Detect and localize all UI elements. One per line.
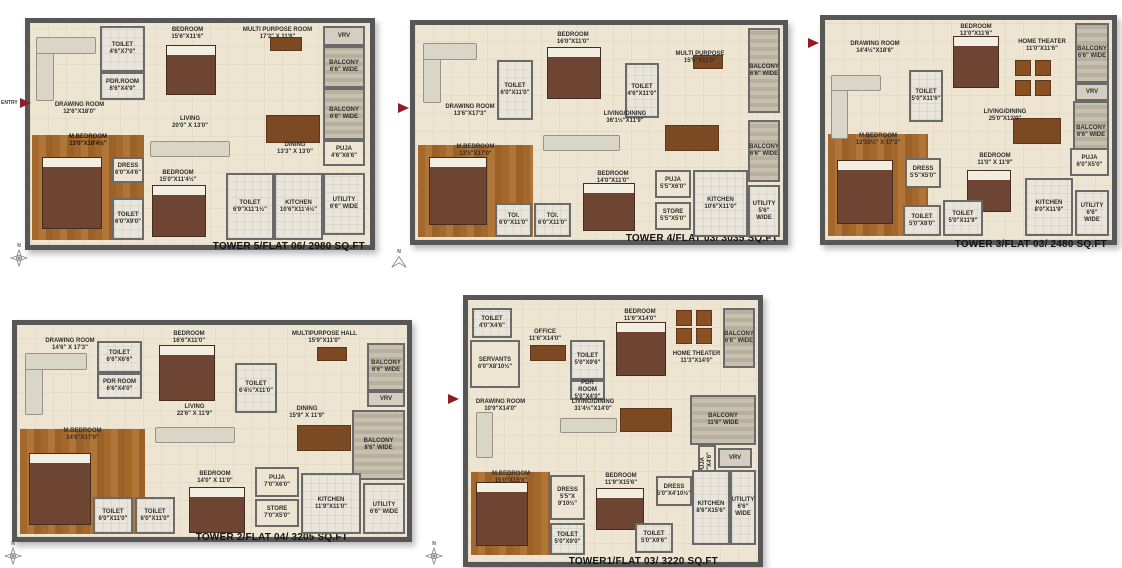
dining-table-graphic: [266, 115, 320, 143]
dining-table-graphic: [297, 425, 351, 451]
room-balcony: BALCONY 11'6" WIDE: [690, 395, 756, 445]
room-drawing: DRAWING ROOM 10'9"X14'0": [473, 398, 528, 418]
sofa-graphic: [560, 418, 617, 433]
room-bedroom: BEDROOM 14'0" X 11'0": [177, 470, 253, 488]
room-balcony: BALCONY 6'6" WIDE: [323, 88, 365, 140]
room-toilet: TOILET 6'0"X9'0": [112, 198, 144, 240]
room-bedroom: BEDROOM 12'0"X11'6": [943, 23, 1009, 41]
room-toi: TOI. 6'0"X11'0": [534, 203, 571, 237]
room-bedroom: BEDROOM 11'0" X 11'9": [957, 152, 1033, 170]
room-bedroom: BEDROOM 16'0"X11'0": [533, 31, 613, 49]
room-toilet: TOILET 4'0"X4'6": [472, 308, 512, 338]
entry-arrow-icon: [448, 394, 459, 404]
room-balcony: BALCONY 6'6" WIDE: [1075, 23, 1109, 83]
theater-seat-graphic: [1035, 80, 1051, 96]
room-toilet: TOILET 5'0"X9'0": [550, 523, 585, 555]
room-pdr: PDR.ROOM 6'6"X4'9": [100, 72, 145, 100]
room-pdr: PDR ROOM 5'0"X4'0": [570, 380, 605, 400]
room-balcony: BALCONY 8'6" WIDE: [352, 410, 405, 480]
room-master-bedroom: M.BEDROOM 14'6"X17'0": [20, 427, 145, 447]
compass-icon: N: [9, 244, 29, 272]
room-dress: DRESS 5'0"X4'10½": [656, 476, 692, 506]
theater-seat-graphic: [676, 328, 692, 344]
room-toilet: TOILET 5'0"X11'9": [943, 200, 983, 236]
room-vrv: VRV: [367, 391, 405, 407]
room-balcony: BALCONY 6'6" WIDE: [323, 46, 365, 88]
bed-graphic: [583, 183, 635, 231]
room-bedroom: BEDROOM 15'6"X11'6": [145, 26, 230, 56]
room-pdr: PDR ROOM 6'6"X4'0": [97, 373, 142, 399]
bed-graphic: [159, 345, 215, 401]
sofa-graphic: [36, 37, 96, 54]
bed-graphic: [476, 482, 528, 546]
bed-graphic: [429, 157, 487, 225]
room-servants: SERVANTS 6'0"X8'10½": [470, 340, 520, 388]
plan-title-tower-3: TOWER 3/FLAT 03/ 2480 SQ.FT: [902, 239, 1107, 250]
floor-plans-sheet: TOILET 4'6"X7'0" PDR.ROOM 6'6"X4'9" BEDR…: [0, 0, 1122, 568]
room-kitchen: KITCHEN 11'9"X11'0": [301, 473, 361, 534]
room-store: STORE 7'0"X5'0": [255, 499, 299, 527]
room-toilet: TOILET 6'6"X6'6": [97, 341, 142, 373]
room-bedroom: BEDROOM 14'0"X11'0": [571, 170, 655, 188]
room-toilet: TOILET 6'0"X11'0": [93, 497, 133, 534]
room-puja: PUJA 5'5"X6'0": [655, 170, 691, 198]
room-master-bedroom: M.BEDROOM 15'0"X15'6": [471, 470, 551, 488]
room-balcony: BALCONY 6'6" WIDE: [748, 120, 780, 182]
room-utility: UTILITY 5'6" WIDE: [748, 185, 780, 237]
floor-plan-tower-4: DRAWING ROOM 13'6"X17'3" TOILET 6'0"X11'…: [410, 20, 788, 245]
room-kitchen: KITCHEN 8'0"X11'9": [1025, 178, 1073, 236]
theater-seat-graphic: [676, 310, 692, 326]
room-master-bedroom: M BEDROOM 12'10½" X 17'3": [828, 132, 928, 152]
room-vrv: VRV: [718, 448, 752, 468]
entry-label: ENTRY: [1, 100, 18, 106]
room-drawing: DRAWING ROOM 14'4½"X18'6": [835, 40, 915, 66]
room-balcony: BALCONY 6'6" WIDE: [748, 28, 780, 113]
room-bedroom: BEDROOM 11'6"X14'0": [605, 308, 675, 326]
entry-arrow-icon: [20, 98, 31, 108]
room-living-dining: LIVING/DINING 25'0"X12'0": [960, 108, 1050, 126]
theater-seat-graphic: [1015, 80, 1031, 96]
room-store: STORE 5'5"X5'0": [655, 202, 691, 230]
room-master-bedroom: M.BEDROOM 13'5"X17'0": [418, 143, 533, 163]
plan-title-tower-1: TOWER1/FLAT 03/ 3220 SQ.FT: [518, 556, 718, 567]
theater-seat-graphic: [1035, 60, 1051, 76]
room-living-dining: LIVING/DINING 36'1½"X11'9": [575, 110, 675, 130]
room-kitchen: KITCHEN 8'6"X15'6": [692, 470, 730, 545]
room-toilet: TOILET 5'0"X11'6": [909, 70, 943, 122]
room-kitchen: KITCHEN 10'6"X11'0": [693, 170, 748, 237]
desk-graphic: [530, 345, 566, 361]
room-toi: TOI. 6'0"X11'0": [495, 203, 532, 237]
sofa-graphic: [831, 75, 881, 91]
room-vrv: VRV: [1075, 83, 1109, 101]
room-home-theater: HOME THEATER 11'0"X11'6": [1009, 38, 1075, 58]
room-toilet: TOILET 6'0"X11'0": [497, 60, 533, 120]
sofa-graphic: [476, 412, 493, 458]
room-master-bedroom: M.BEDROOM 13'0"X18'4½": [32, 133, 144, 157]
room-utility: UTILITY 6'6" WIDE: [363, 483, 405, 534]
room-toilet: TOILET 4'6"X7'0": [100, 26, 145, 72]
room-toilet: TOILET 6'0"X11'0": [135, 497, 175, 534]
room-toilet: TOILET 5'0"X9'6": [570, 340, 605, 380]
bed-graphic: [837, 160, 893, 224]
bed-graphic: [152, 185, 206, 237]
sofa-graphic: [150, 141, 230, 157]
floor-plan-tower-5: TOILET 4'6"X7'0" PDR.ROOM 6'6"X4'9" BEDR…: [25, 18, 375, 250]
sofa-graphic: [543, 135, 620, 151]
compass-icon: N: [389, 250, 409, 274]
room-dress: DRESS 5'5"X 9'10½": [550, 475, 585, 520]
room-utility: UTILITY 6'6" WIDE: [1075, 190, 1109, 236]
room-balcony: BALCONY 6'6" WIDE: [367, 343, 405, 391]
compass-icon: N: [424, 542, 444, 568]
sofa-graphic: [423, 43, 477, 60]
room-vrv: VRV: [323, 26, 365, 46]
room-dining: DINING 13'3" X 13'0": [265, 141, 325, 161]
room-toilet: TOILET 5'0"X8'0": [903, 205, 941, 236]
entry-arrow-icon: [808, 38, 819, 48]
bed-graphic: [616, 322, 666, 376]
room-dining: DINING 15'9" X 11'9": [272, 405, 342, 423]
plan-title-tower-5: TOWER 5/FLAT 06/ 2980 SQ.FT: [160, 241, 365, 252]
room-living: LIVING 20'0" X 13'0": [145, 115, 235, 139]
sofa-graphic: [155, 427, 235, 443]
bed-graphic: [29, 453, 91, 525]
room-drawing: DRAWING ROOM 12'6"X18'0": [32, 101, 127, 131]
room-bedroom: BEDROOM 16'6"X11'0": [144, 330, 234, 348]
room-utility: UTILITY 6'6" WIDE: [730, 470, 756, 545]
room-dress: DRESS 5'5"X5'0": [905, 158, 941, 188]
room-office: OFFICE 11'6"X14'0": [520, 328, 570, 346]
entry-marker: ENTRY: [1, 98, 31, 108]
room-living-dining: LIVING/DINING 31'4½"X14'0": [543, 398, 643, 416]
room-multipurpose: MULTI PURPOSE 15'5"X11'0": [659, 50, 741, 80]
room-kitchen: KITCHEN 10'6"X11'4½": [274, 173, 323, 240]
room-dress: DRESS 6'0"X4'6": [112, 157, 144, 183]
room-utility: UTILITY 6'6" WIDE: [323, 173, 365, 235]
room-toilet: TOILET 5'0"X9'6": [635, 523, 673, 553]
theater-seat-graphic: [696, 328, 712, 344]
floor-plan-tower-1: TOILET 4'0"X4'6" SERVANTS 6'0"X8'10½" OF…: [463, 295, 763, 567]
room-home-theater: HOME THEATER 11'3"X14'0": [670, 350, 723, 370]
bed-graphic: [953, 36, 999, 88]
room-puja: PUJA 6'0"X5'0": [1070, 148, 1109, 176]
entry-arrow-icon: [398, 103, 409, 113]
room-balcony: BALCONY 6'6" WIDE: [723, 308, 755, 368]
bed-graphic: [42, 157, 102, 229]
floor-plan-tower-2: DRAWING ROOM 14'6" X 17'3" TOILET 6'6"X6…: [12, 320, 412, 542]
room-multipurpose-hall: MULTIPURPOSE HALL 15'9"X11'0": [282, 330, 367, 360]
room-toilet: TOILET 6'9"X11'1½": [226, 173, 274, 240]
room-puja: PUJA 7'0"X6'0": [255, 467, 299, 497]
bed-graphic: [547, 47, 601, 99]
room-puja: PUJA 4'6"X6'6": [323, 140, 365, 166]
room-bedroom: BEDROOM 15'0"X11'4½": [144, 169, 212, 187]
room-multipurpose: MULTI PURPOSE ROOM 17'3" X 11'6": [232, 26, 323, 60]
theater-seat-graphic: [696, 310, 712, 326]
compass-icon: N: [3, 542, 23, 568]
bed-graphic: [189, 487, 245, 533]
room-living: LIVING 22'6" X 11'9": [147, 403, 242, 423]
floor-plan-tower-3: DRAWING ROOM 14'4½"X18'6" BEDROOM 12'0"X…: [820, 15, 1117, 245]
theater-seat-graphic: [1015, 60, 1031, 76]
room-bedroom: BEDROOM 11'9"X15'6": [586, 472, 656, 490]
